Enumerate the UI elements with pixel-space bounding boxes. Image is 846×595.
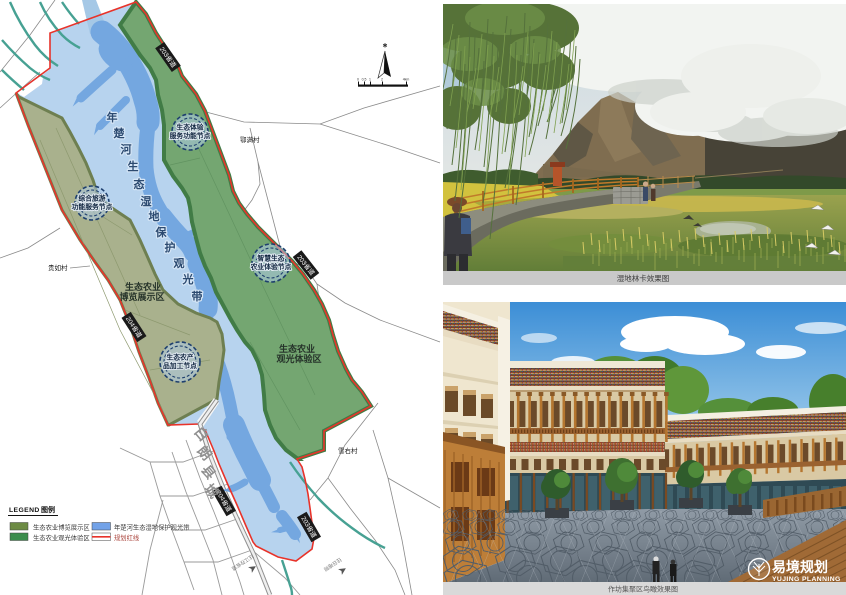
svg-text:功能服务节点: 功能服务节点	[72, 202, 113, 211]
svg-text:年: 年	[107, 110, 118, 124]
svg-text:态: 态	[134, 177, 145, 191]
svg-text:护: 护	[165, 240, 176, 254]
svg-text:生态农业观光体验区: 生态农业观光体验区	[33, 533, 90, 542]
svg-text:农业体验节点: 农业体验节点	[250, 262, 292, 271]
svg-text:生: 生	[128, 159, 139, 173]
svg-text:易境规划: 易境规划	[772, 559, 828, 575]
svg-text:带: 带	[192, 289, 203, 303]
svg-text:智慧生态: 智慧生态	[257, 254, 284, 263]
svg-text:博览展示区: 博览展示区	[119, 291, 164, 302]
svg-text:LEGEND: LEGEND	[9, 507, 40, 514]
svg-text:观光体验区: 观光体验区	[276, 353, 321, 364]
svg-text:规划红线: 规划红线	[114, 533, 140, 542]
svg-text:✱: ✱	[382, 43, 387, 50]
svg-text:鄂满村: 鄂满村	[240, 135, 260, 144]
svg-text:湿地林卡效果图: 湿地林卡效果图	[617, 273, 670, 283]
svg-text:往江孜省道: 往江孜省道	[230, 553, 255, 572]
svg-text:0: 0	[357, 78, 359, 82]
svg-text:1: 1	[369, 78, 371, 82]
svg-text:往日喀则: 往日喀则	[322, 556, 343, 573]
svg-text:品加工节点: 品加工节点	[163, 361, 197, 370]
svg-text:作坊集聚区鸟瞰效果图: 作坊集聚区鸟瞰效果图	[608, 585, 678, 594]
svg-text:YUJING PLANNING: YUJING PLANNING	[772, 576, 841, 583]
svg-text:光: 光	[182, 272, 194, 286]
svg-text:地: 地	[149, 209, 160, 223]
svg-text:生态体验: 生态体验	[176, 123, 203, 132]
svg-text:保: 保	[155, 225, 168, 239]
svg-text:湿: 湿	[141, 194, 152, 208]
svg-text:生态农产: 生态农产	[166, 353, 193, 362]
svg-text:年楚河生态湿地保护观光带: 年楚河生态湿地保护观光带	[114, 523, 190, 532]
svg-text:综合旅游: 综合旅游	[78, 194, 105, 203]
svg-text:服务功能节点: 服务功能节点	[170, 131, 211, 140]
svg-text:楚: 楚	[114, 126, 126, 140]
svg-text:0.5: 0.5	[362, 78, 367, 82]
svg-text:生态农业: 生态农业	[125, 281, 161, 292]
svg-text:生态农业: 生态农业	[279, 343, 315, 354]
svg-text:观: 观	[174, 257, 185, 270]
svg-text:2: 2	[381, 78, 383, 82]
svg-text:生态农业博览展示区: 生态农业博览展示区	[33, 523, 90, 532]
svg-text:贵如村: 贵如村	[48, 263, 68, 272]
svg-text:雪右村: 雪右村	[338, 446, 358, 455]
svg-text:4km: 4km	[403, 78, 410, 82]
svg-text:图例: 图例	[41, 505, 55, 514]
svg-text:河: 河	[121, 142, 132, 156]
